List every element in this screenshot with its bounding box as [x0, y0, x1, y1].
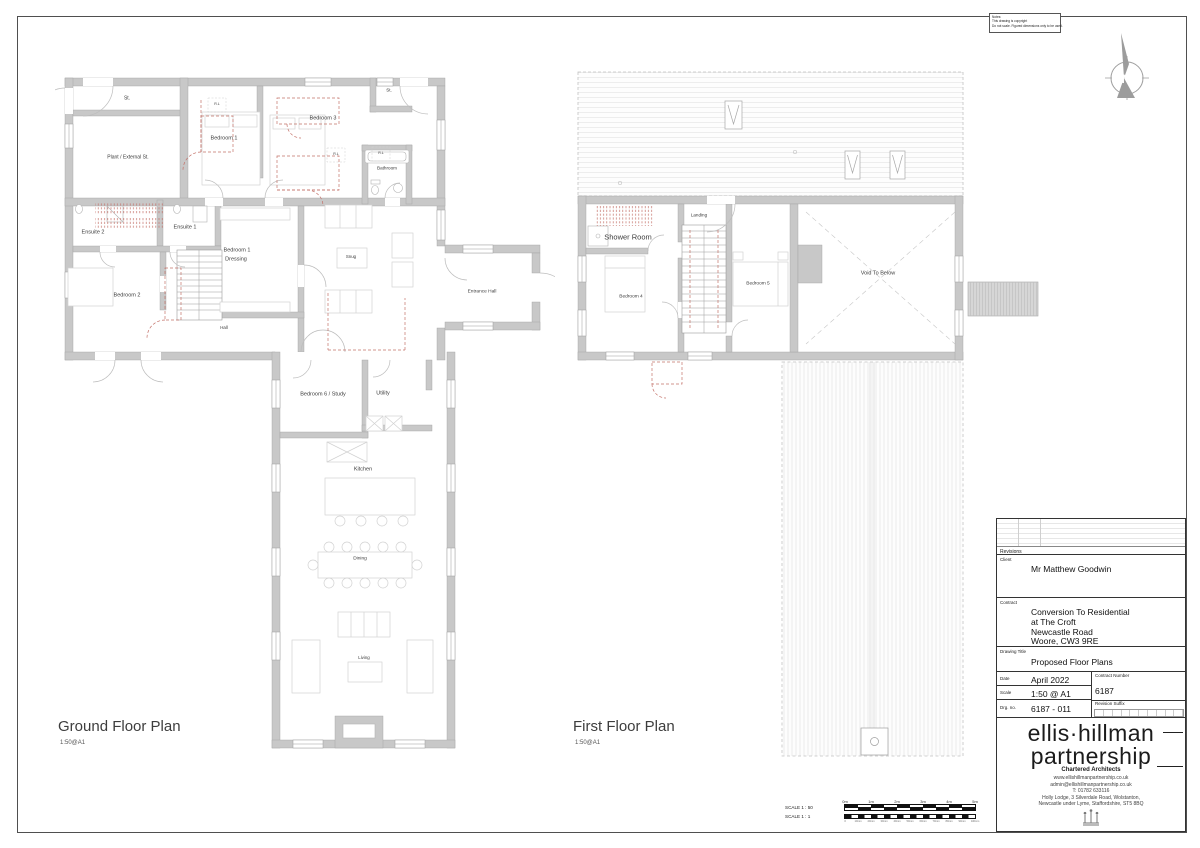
- ground-stairs: [177, 250, 222, 320]
- drawing-title-section: Drawing Title Proposed Floor Plans: [997, 647, 1185, 672]
- room-label-bedroom-4: Bedroom 4: [619, 296, 642, 301]
- firm-tagline: Chartered Architects: [997, 767, 1185, 773]
- ground-floor-title: Ground Floor Plan: [58, 718, 181, 735]
- first-floor-drawing: [570, 60, 1050, 770]
- notes-line-3: Do not scale. Figured dimensions only to…: [992, 24, 1058, 28]
- firm-panel: ellis·hillman partnership Chartered Arch…: [997, 718, 1185, 831]
- rooflight-label-2: R.L: [333, 153, 339, 157]
- scale-tick-0m: 0m: [842, 799, 848, 804]
- scale-strip-1: [845, 815, 975, 818]
- room-label-bedroom-5: Bedroom 5: [746, 283, 769, 288]
- scale-mm-6: 60mm: [920, 819, 927, 823]
- scale-row: Scale 1:50 @ A1: [997, 686, 1091, 700]
- logo-rule-1: [1163, 732, 1183, 733]
- revision-suffix-cells: [1094, 709, 1184, 717]
- room-label-kitchen: Kitchen: [354, 467, 372, 473]
- title-block: Revisions Client Mr Matthew Goodwin Cont…: [996, 518, 1186, 832]
- revision-suffix-cell: Revision Suffix: [1091, 700, 1185, 718]
- firm-phone: T: 01782 633116: [997, 789, 1185, 794]
- date-value: April 2022: [1031, 675, 1069, 685]
- scale-strip-50-bottom: [845, 808, 975, 811]
- contract-label: Contract: [1000, 600, 1017, 605]
- ground-floor-scale-note: 1:50@A1: [60, 740, 85, 746]
- scale-mm-9: 90mm: [959, 819, 966, 823]
- firm-crest-icon: [1081, 809, 1101, 829]
- scale-bar-label-2: SCALE 1 : 1: [785, 814, 810, 819]
- revision-suffix-label: Revision Suffix: [1095, 701, 1125, 706]
- firm-email: admin@ellishillmanpartnership.co.uk: [997, 783, 1185, 788]
- scale-bar: SCALE 1 : 50 SCALE 1 : 1 0m 1m 2m 3m 4m …: [785, 799, 985, 826]
- drawing-title-value: Proposed Floor Plans: [1031, 657, 1113, 667]
- room-label-utility: Utility: [376, 391, 389, 397]
- canopy-right: [968, 282, 1038, 316]
- scale-value: 1:50 @ A1: [1031, 689, 1071, 699]
- drawing-title-label: Drawing Title: [1000, 649, 1026, 654]
- room-label-bathroom: Bathroom: [377, 167, 397, 172]
- scale-mm-5: 50mm: [907, 819, 914, 823]
- north-letter: N: [1122, 72, 1131, 86]
- room-label-living: Living: [358, 656, 369, 660]
- firm-name-line-2: partnership: [997, 745, 1185, 768]
- north-arrow-graphic: N: [1100, 25, 1154, 110]
- revisions-row: Revisions: [997, 546, 1185, 555]
- ground-floor-drawing: [55, 60, 555, 760]
- firm-address-1: Holly Lodge, 3 Silverdale Road, Wolstant…: [997, 796, 1185, 801]
- firm-name-line-1: ellis·hillman: [997, 722, 1185, 745]
- room-label-entrance-hall: Entrance Hall: [468, 291, 497, 296]
- scale-tick-1m: 1m: [868, 799, 874, 804]
- scale-tick-3m: 3m: [920, 799, 926, 804]
- room-label-plant: Plant / External St.: [107, 156, 148, 161]
- revisions-grid: [997, 519, 1185, 546]
- roof-south: [782, 362, 963, 756]
- drg-no-label: Drg. no.: [1000, 705, 1016, 710]
- scale-mm-3: 30mm: [881, 819, 888, 823]
- room-label-landing: Landing: [691, 214, 707, 219]
- first-floor-title: First Floor Plan: [573, 718, 675, 735]
- scale-mm-10: 100mm: [971, 819, 979, 823]
- first-stairs: [682, 225, 726, 333]
- room-label-bedroom-6: Bedroom 6 / Study: [300, 392, 346, 398]
- scale-mm-2: 20mm: [868, 819, 875, 823]
- ground-floor-plan: St. Plant / External St. Bedroom 1 Bedro…: [55, 60, 555, 760]
- room-label-shower-room: Shower Room: [604, 233, 652, 241]
- scale-mm-0: 0: [844, 819, 845, 823]
- north-arrow: N: [1100, 25, 1154, 110]
- room-label-bedroom-3: Bedroom 3: [310, 116, 337, 122]
- client-value: Mr Matthew Goodwin: [1031, 564, 1111, 574]
- first-floor-plan: Shower Room Landing Bedroom 4 Bedroom 5 …: [570, 60, 1050, 770]
- drg-no-value: 6187 - 011: [1031, 704, 1071, 714]
- room-label-bedroom-2: Bedroom 2: [114, 293, 141, 299]
- contract-number-cell: Contract Number 6187: [1091, 672, 1186, 701]
- firm-website: www.ellishillmanpartnership.co.uk: [997, 776, 1185, 781]
- client-label: Client: [1000, 557, 1012, 562]
- date-row: Date April 2022: [997, 672, 1091, 686]
- room-label-ensuite-2: Ensuite 2: [82, 230, 105, 236]
- first-floor-scale-note: 1:50@A1: [575, 740, 600, 746]
- scale-bar-label-1: SCALE 1 : 50: [785, 805, 813, 810]
- drawing-sheet: Notes: This drawing is copyright Do not …: [0, 0, 1200, 848]
- scale-label: Scale: [1000, 690, 1011, 695]
- contract-line-4: Woore, CW3 9RE: [1031, 637, 1130, 647]
- date-label: Date: [1000, 676, 1010, 681]
- room-label-dressing-1: Bedroom 1: [224, 248, 251, 254]
- scale-mm-7: 70mm: [933, 819, 940, 823]
- void-cross: [806, 212, 955, 344]
- notes-box: Notes: This drawing is copyright Do not …: [989, 13, 1061, 33]
- contract-section: Contract Conversion To Residential at Th…: [997, 598, 1185, 647]
- roof-top: [578, 72, 963, 196]
- scale-mm-8: 80mm: [946, 819, 953, 823]
- room-label-st-right: St.: [386, 89, 392, 94]
- contract-number-value: 6187: [1095, 686, 1114, 696]
- scale-mm-4: 40mm: [894, 819, 901, 823]
- room-label-snug: Snug: [346, 255, 356, 259]
- scale-mm-1: 10mm: [855, 819, 862, 823]
- drg-no-row: Drg. no. 6187 - 011: [997, 700, 1091, 718]
- room-label-ensuite-1: Ensuite 1: [174, 225, 197, 231]
- rooflight-label-1: R.L: [214, 103, 220, 107]
- scale-tick-2m: 2m: [894, 799, 900, 804]
- scale-tick-5m: 5m: [972, 799, 978, 804]
- room-label-dressing-2: Dressing: [225, 257, 247, 263]
- room-label-dining: Dining: [353, 558, 367, 563]
- scale-tick-4m: 4m: [946, 799, 952, 804]
- room-label-void: Void To Below: [861, 271, 895, 277]
- room-label-bedroom-1: Bedroom 1: [211, 136, 238, 142]
- room-label-hall: Hall: [220, 326, 228, 330]
- contract-number-label: Contract Number: [1095, 673, 1129, 678]
- client-section: Client Mr Matthew Goodwin: [997, 555, 1185, 598]
- firm-address-2: Newcastle under Lyme, Staffordshire, ST5…: [997, 802, 1185, 807]
- room-label-st-top: St.: [124, 97, 130, 102]
- rooflight-label-3: R.L: [378, 152, 384, 156]
